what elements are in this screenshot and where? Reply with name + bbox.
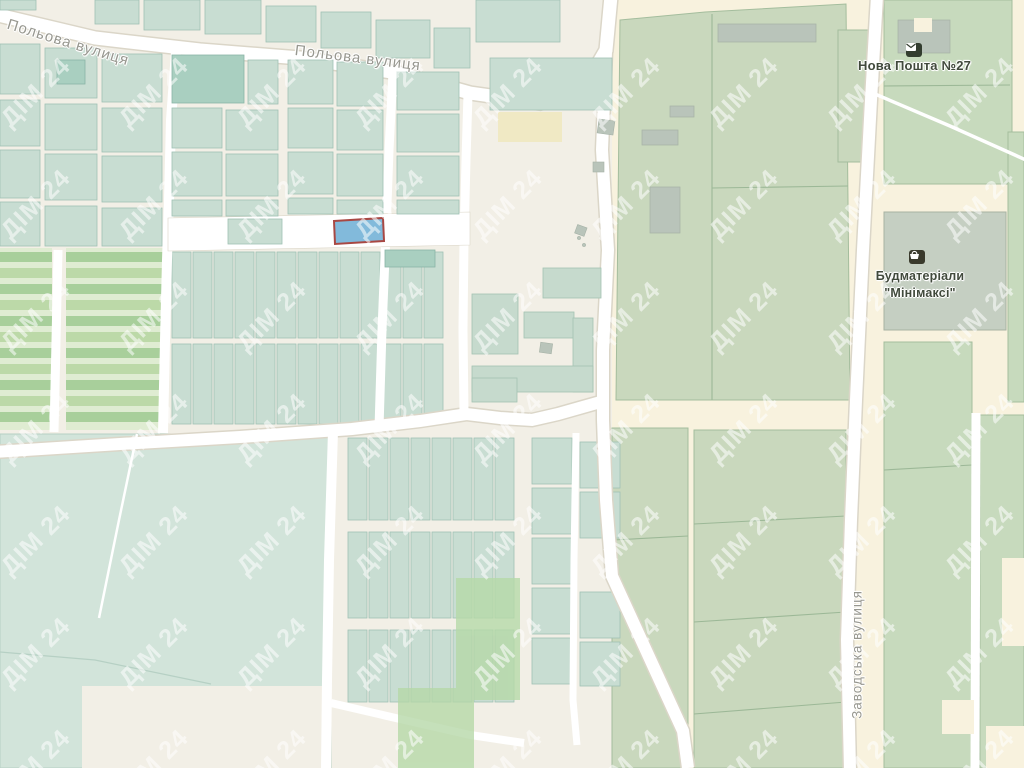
basket-icon[interactable]: [909, 250, 925, 264]
map-viewport[interactable]: ДІМ 24ДІМ 24ДІМ 24ДІМ 24ДІМ 24ДІМ 24ДІМ …: [0, 0, 1024, 768]
poi-minimaksi[interactable]: Будматеріали "Мінімаксі": [866, 268, 974, 302]
envelope-icon[interactable]: [906, 43, 922, 57]
yellow-lot: [498, 112, 562, 142]
map-canvas[interactable]: [0, 0, 1024, 768]
poi-minimaksi-line1: Будматеріали: [866, 268, 974, 285]
road-band: [168, 212, 470, 251]
poi-minimaksi-line2: "Мінімаксі": [866, 285, 974, 302]
highlighted-parcel[interactable]: [334, 218, 384, 244]
farm-strips: [0, 252, 163, 422]
street-label-zavodska: Заводська вулиця: [850, 590, 865, 720]
southwest-field: [0, 434, 331, 768]
poi-nova-poshta[interactable]: Нова Пошта №27: [858, 58, 970, 73]
